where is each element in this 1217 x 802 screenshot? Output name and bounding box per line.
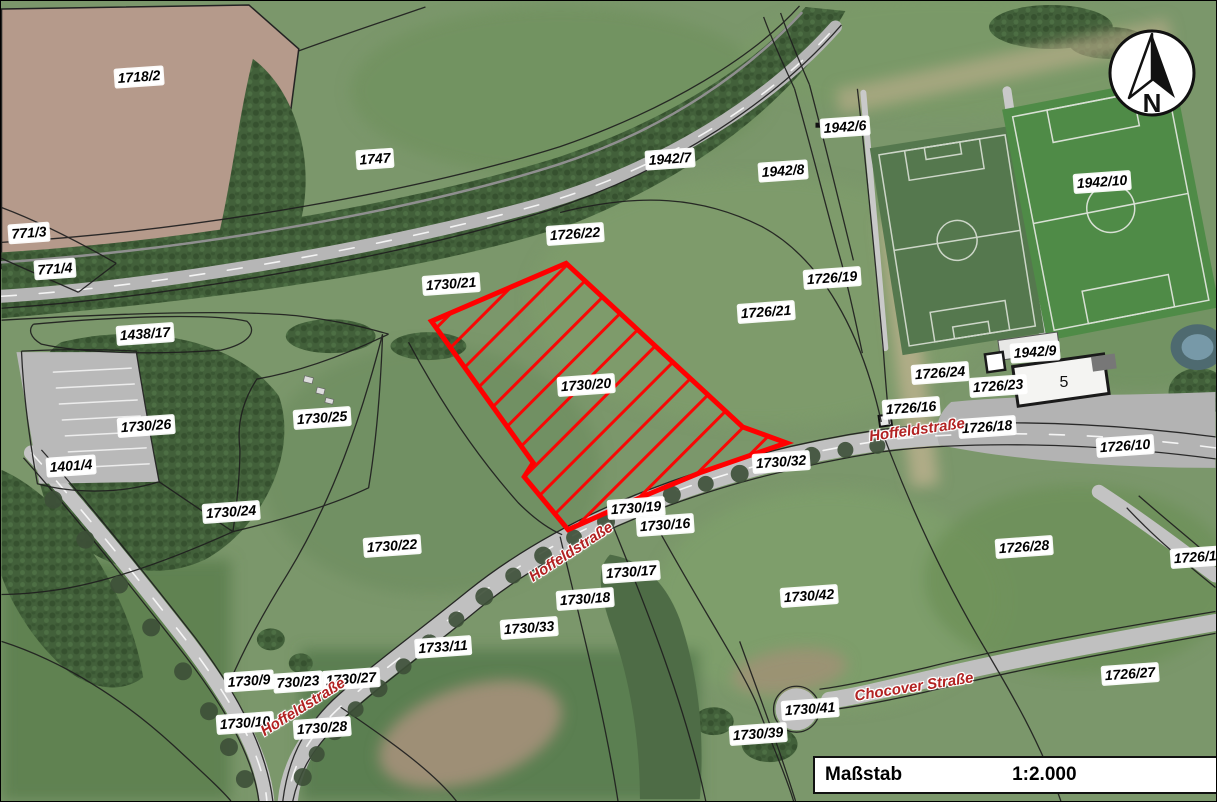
map-canvas: 1718/21747771/3771/41438/171730/261401/4… (0, 0, 1217, 802)
scale-label: Maßstab (825, 764, 902, 786)
building-label: 5 (1060, 374, 1069, 392)
scale-box: Maßstab 1:2.000 (813, 756, 1217, 794)
scale-value: 1:2.000 (1012, 764, 1076, 786)
street-label-layer: HoffeldstraßeHoffeldstraßeHoffeldstraßeC… (1, 1, 1216, 801)
street-label-3: Chocover Straße (853, 669, 974, 705)
north-label: N (1143, 88, 1162, 118)
street-label-1: Hoffeldstraße (526, 519, 616, 586)
street-label-2: Hoffeldstraße (258, 674, 349, 740)
north-arrow: N (1107, 28, 1197, 118)
street-label-0: Hoffeldstraße (868, 415, 966, 445)
